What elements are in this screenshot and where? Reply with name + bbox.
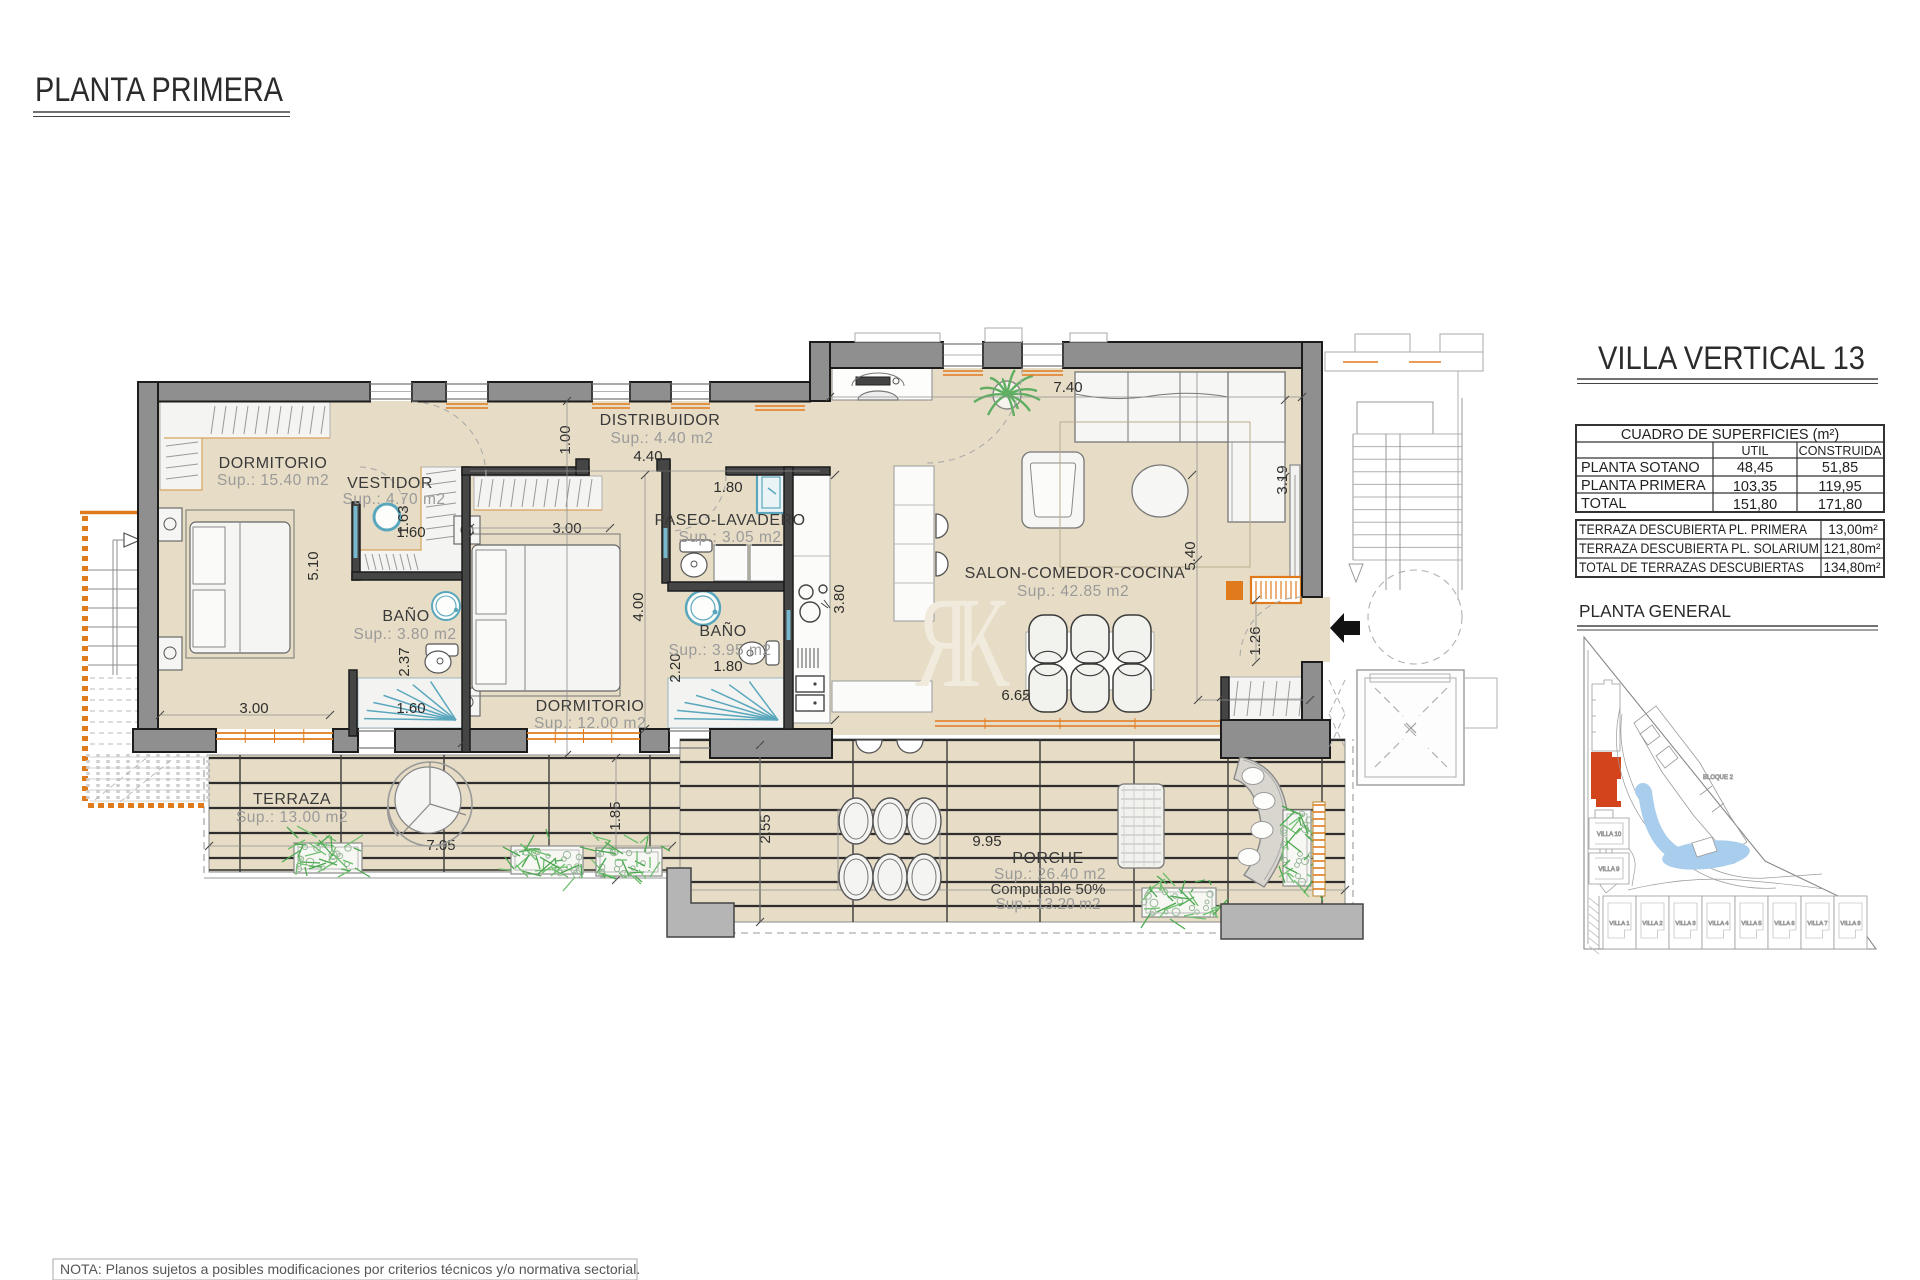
svg-text:Sup.: 13.00 m2: Sup.: 13.00 m2 [236, 809, 348, 826]
svg-text:1.80: 1.80 [713, 479, 742, 496]
svg-text:VESTIDOR: VESTIDOR [347, 475, 433, 492]
svg-text:2.37: 2.37 [396, 647, 413, 676]
svg-text:Sup.: 15.40 m2: Sup.: 15.40 m2 [217, 472, 329, 489]
svg-text:13,00m²: 13,00m² [1828, 522, 1878, 537]
svg-text:VILLA 2: VILLA 2 [1642, 921, 1662, 927]
svg-text:DORMITORIO: DORMITORIO [536, 698, 645, 715]
svg-text:PLANTA SOTANO: PLANTA SOTANO [1581, 460, 1700, 476]
svg-text:BAÑO: BAÑO [382, 605, 429, 625]
svg-text:TERRAZA DESCUBIERTA PL. SOLARI: TERRAZA DESCUBIERTA PL. SOLARIUM [1579, 541, 1819, 556]
svg-text:119,95: 119,95 [1818, 479, 1861, 495]
svg-text:7.40: 7.40 [1053, 379, 1082, 396]
svg-text:Sup.: 3.05 m2: Sup.: 3.05 m2 [678, 529, 781, 546]
svg-text:VILLA 9: VILLA 9 [1598, 867, 1620, 873]
svg-text:Sup.: 12.00 m2: Sup.: 12.00 m2 [534, 715, 646, 732]
svg-text:VILLA 3: VILLA 3 [1675, 921, 1695, 927]
svg-text:VILLA 7: VILLA 7 [1807, 921, 1827, 927]
svg-text:BLOQUE 2: BLOQUE 2 [1703, 775, 1734, 781]
svg-text:BAÑO: BAÑO [699, 620, 746, 640]
svg-text:1.26: 1.26 [1247, 626, 1264, 655]
svg-text:DORMITORIO: DORMITORIO [219, 455, 328, 472]
svg-text:121,80m²: 121,80m² [1823, 541, 1881, 556]
svg-text:171,80: 171,80 [1818, 497, 1862, 513]
svg-text:4.40: 4.40 [633, 448, 662, 465]
svg-text:Sup.: 3.80 m2: Sup.: 3.80 m2 [353, 626, 456, 643]
svg-text:48,45: 48,45 [1737, 460, 1773, 476]
svg-text:VILLA 1: VILLA 1 [1609, 921, 1629, 927]
svg-text:Sup.: 4.40 m2: Sup.: 4.40 m2 [610, 430, 713, 447]
svg-text:3.80: 3.80 [831, 584, 848, 613]
svg-text:VILLA VERTICAL 13: VILLA VERTICAL 13 [1598, 340, 1865, 376]
svg-text:151,80: 151,80 [1733, 497, 1777, 513]
svg-text:VILLA 6: VILLA 6 [1774, 921, 1794, 927]
svg-text:5.10: 5.10 [305, 551, 322, 580]
svg-text:TERRAZA DESCUBIERTA PL. PRIMER: TERRAZA DESCUBIERTA PL. PRIMERA [1579, 522, 1807, 537]
svg-text:PLANTA GENERAL: PLANTA GENERAL [1579, 601, 1731, 621]
svg-text:4.00: 4.00 [630, 592, 647, 621]
svg-text:1.60: 1.60 [396, 700, 425, 717]
svg-text:Sup.: 13.20 m2: Sup.: 13.20 m2 [995, 896, 1100, 913]
svg-text:NOTA: Planos sujetos a posible: NOTA: Planos sujetos a posibles modifica… [60, 1261, 640, 1277]
svg-text:1.00: 1.00 [557, 425, 574, 454]
svg-text:Sup.: 3.95 m2: Sup.: 3.95 m2 [668, 642, 771, 659]
svg-text:UTIL: UTIL [1741, 444, 1768, 458]
svg-text:VILLA 10: VILLA 10 [1597, 832, 1622, 838]
svg-text:2.55: 2.55 [757, 814, 774, 843]
svg-text:134,80m²: 134,80m² [1823, 560, 1881, 575]
svg-text:TOTAL: TOTAL [1581, 496, 1626, 512]
svg-text:1.85: 1.85 [607, 801, 624, 830]
svg-text:PASEO-LAVADERO: PASEO-LAVADERO [654, 512, 805, 529]
svg-text:1.63: 1.63 [395, 505, 412, 534]
svg-text:CUADRO DE SUPERFICIES (m²): CUADRO DE SUPERFICIES (m²) [1621, 427, 1839, 443]
svg-text:CONSTRUIDA: CONSTRUIDA [1799, 444, 1882, 458]
svg-text:VILLA 5: VILLA 5 [1741, 921, 1761, 927]
svg-text:1.80: 1.80 [713, 658, 742, 675]
svg-text:TERRAZA: TERRAZA [253, 791, 331, 808]
svg-text:VILLA 4: VILLA 4 [1708, 921, 1729, 927]
svg-text:K: K [956, 570, 1010, 714]
svg-text:Sup.: 4.70 m2: Sup.: 4.70 m2 [342, 491, 445, 508]
svg-text:9.95: 9.95 [972, 833, 1001, 850]
svg-text:3.00: 3.00 [239, 700, 268, 717]
svg-text:TOTAL DE TERRAZAS DESCUBIERTAS: TOTAL DE TERRAZAS DESCUBIERTAS [1579, 560, 1804, 575]
svg-text:Sup.: 42.85 m2: Sup.: 42.85 m2 [1017, 583, 1129, 600]
svg-text:51,85: 51,85 [1822, 460, 1858, 476]
svg-text:103,35: 103,35 [1733, 479, 1777, 495]
svg-text:PLANTA PRIMERA: PLANTA PRIMERA [1581, 478, 1706, 494]
svg-text:DISTRIBUIDOR: DISTRIBUIDOR [600, 412, 721, 429]
svg-text:PORCHE: PORCHE [1012, 850, 1083, 867]
svg-text:PLANTA PRIMERA: PLANTA PRIMERA [35, 71, 283, 109]
svg-text:VILLA 8: VILLA 8 [1840, 921, 1860, 927]
